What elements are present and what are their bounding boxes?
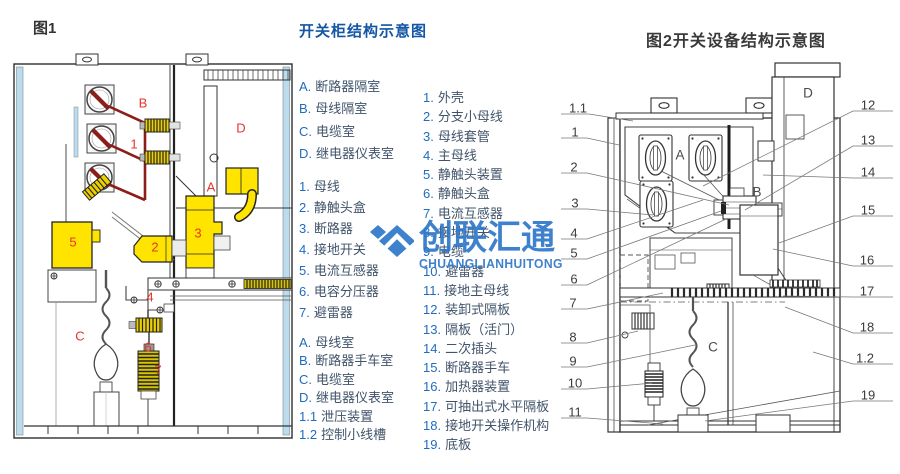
legend-item-number: C. <box>299 121 312 143</box>
legend-item: 15.断路器手车 <box>423 358 549 377</box>
legend-item-number: 9. <box>423 242 434 261</box>
callout-label-1: 1 <box>571 126 578 139</box>
callout-label-1: 1 <box>130 138 137 151</box>
legend-item-label: 母线 <box>314 176 340 197</box>
legend-item: B.断路器手车室 <box>299 352 394 370</box>
legend-item-label: 避雷器 <box>445 262 484 281</box>
callout-label-2: 2 <box>570 161 577 174</box>
legend-item-label: 分支小母线 <box>438 107 503 126</box>
legend-item-number: 1. <box>299 176 310 197</box>
legend-item-number: 3. <box>299 218 310 239</box>
legend-item: 7.避雷器 <box>299 302 379 323</box>
legend-item-number: 1.1 <box>299 408 317 426</box>
callout-label-1.1: 1.1 <box>569 102 587 115</box>
callout-label-A: A <box>207 181 216 194</box>
callout-label-C: C <box>75 330 84 343</box>
callout-label-D: D <box>803 86 813 100</box>
legend-item-label: 接地开关操作机构 <box>445 416 549 435</box>
legend-item-label: 静触头装置 <box>438 165 503 184</box>
legend-item-number: 3. <box>423 127 434 146</box>
legend-item-number: C. <box>299 371 312 389</box>
legend-item-label: 加热器装置 <box>445 377 510 396</box>
legend-item: D.继电器仪表室 <box>299 143 394 165</box>
legend-item-number: 1. <box>423 88 434 107</box>
legend-item-label: 电缆室 <box>316 371 355 389</box>
callout-label-C: C <box>708 340 718 354</box>
legend-item-number: D. <box>299 143 312 165</box>
legend-item: 4.主母线 <box>423 146 549 165</box>
legend-item: 14.二次插头 <box>423 339 549 358</box>
callout-label-7: 7 <box>569 297 576 310</box>
legend-item-number: A. <box>299 334 311 352</box>
legend-item-number: 1.2 <box>299 426 317 444</box>
legend-item-label: 避雷器 <box>314 302 353 323</box>
legend-item: 1.母线 <box>299 176 379 197</box>
legend-item: 5.静触头装置 <box>423 165 549 184</box>
callout-label-3: 3 <box>571 197 578 210</box>
legend-item-number: 2. <box>423 107 434 126</box>
legend-item-number: B. <box>299 352 311 370</box>
legend-item-number: 14. <box>423 339 441 358</box>
legend-item-number: A. <box>299 76 311 98</box>
legend-item: 9.电缆 <box>423 242 549 261</box>
callout-label-5: 5 <box>570 247 577 260</box>
legend-item-label: 隔板（活门） <box>445 320 523 339</box>
callout-label-12: 12 <box>861 99 875 112</box>
legend-item-label: 继电器仪表室 <box>316 143 394 165</box>
legend-item-number: 6. <box>423 184 434 203</box>
legend-item: 13.隔板（活门） <box>423 320 549 339</box>
legend-item-label: 泄压装置 <box>321 408 373 426</box>
legend-item-number: 13. <box>423 320 441 339</box>
figure2-drawing-svg <box>553 53 900 473</box>
callout-label-16: 16 <box>860 254 874 267</box>
legend-item-number: 7. <box>423 204 434 223</box>
callout-label-15: 15 <box>861 204 875 217</box>
figure1-tag: 图1 <box>33 17 56 38</box>
legend-item: 1.1泄压装置 <box>299 408 394 426</box>
legend-item: C.电缆室 <box>299 121 394 143</box>
legend-item-label: 主母线 <box>438 146 477 165</box>
callout-label-B: B <box>752 185 761 199</box>
callout-label-1.2: 1.2 <box>856 352 874 365</box>
legend-item: 11.接地主母线 <box>423 281 549 300</box>
callout-label-5: 5 <box>69 236 76 249</box>
legend-item-label: 静触头盒 <box>438 184 490 203</box>
legend-item-label: 接地主母线 <box>444 281 509 300</box>
callout-label-2: 2 <box>151 241 158 254</box>
callout-label-A: A <box>675 148 684 162</box>
legend-item-label: 电缆室 <box>316 121 355 143</box>
legend-item: 4.接地开关 <box>299 239 379 260</box>
legend-item-label: 断路器手车室 <box>315 352 393 370</box>
legend-item-label: 可抽出式水平隔板 <box>445 397 549 416</box>
legend-item-label: 接地开关 <box>314 239 366 260</box>
legend-item: 18.接地开关操作机构 <box>423 416 549 435</box>
legend-item: 2.分支小母线 <box>423 107 549 126</box>
legend-item-number: 6. <box>299 281 310 302</box>
legend-item: 3.断路器 <box>299 218 379 239</box>
legend-item-number: 7. <box>299 302 310 323</box>
legend-item-number: 18. <box>423 416 441 435</box>
legend-item: 8.接地开关 <box>423 223 549 242</box>
legend-item: 12.装卸式隔板 <box>423 300 549 319</box>
figure1-title: 开关柜结构示意图 <box>299 20 427 41</box>
legend-item-number: 15. <box>423 358 441 377</box>
figure2-diagram: 1.11234567891011121314151617181.219ABCD <box>553 53 900 473</box>
legend-item-label: 装卸式隔板 <box>445 300 510 319</box>
figure1-diagram: BD1A5324C67 <box>8 48 298 448</box>
legend-item: 17.可抽出式水平隔板 <box>423 397 549 416</box>
legend-item-label: 控制小线槽 <box>321 426 386 444</box>
legend-item-label: 静触头盒 <box>314 197 366 218</box>
legend-item: 6.静触头盒 <box>423 184 549 203</box>
legend-item: 7.电流互感器 <box>423 204 549 223</box>
legend-fig2-compartments: A.母线室B.断路器手车室C.电缆室D.继电器仪表室1.1泄压装置1.2控制小线… <box>299 334 394 444</box>
legend-item: 6.电容分压器 <box>299 281 379 302</box>
legend-item: B.母线隔室 <box>299 98 394 120</box>
legend-item-number: 10. <box>423 262 441 281</box>
legend-item-label: 断路器隔室 <box>315 76 380 98</box>
legend-item-number: 5. <box>423 165 434 184</box>
legend-item-number: 4. <box>299 239 310 260</box>
legend-item: A.断路器隔室 <box>299 76 394 98</box>
legend-item-number: 16. <box>423 377 441 396</box>
legend-item-label: 电流互感器 <box>314 260 379 281</box>
legend-item-label: 母线套管 <box>438 127 490 146</box>
callout-label-7: 7 <box>154 364 161 377</box>
legend-item-label: 接地开关 <box>438 223 490 242</box>
callout-label-19: 19 <box>861 389 875 402</box>
legend-fig2-parts: 1.外壳2.分支小母线3.母线套管4.主母线5.静触头装置6.静触头盒7.电流互… <box>423 88 549 455</box>
legend-item: A.母线室 <box>299 334 394 352</box>
callout-label-9: 9 <box>569 355 576 368</box>
legend-item-number: D. <box>299 389 312 407</box>
legend-item: 5.电流互感器 <box>299 260 379 281</box>
callout-label-4: 4 <box>570 227 577 240</box>
legend-item-label: 断路器 <box>314 218 353 239</box>
legend-item: C.电缆室 <box>299 371 394 389</box>
legend-item-label: 电容分压器 <box>314 281 379 302</box>
legend-item-label: 电缆 <box>438 242 464 261</box>
legend-item-label: 母线室 <box>315 334 354 352</box>
legend-item-number: 2. <box>299 197 310 218</box>
callout-label-3: 3 <box>194 227 201 240</box>
callout-label-18: 18 <box>860 321 874 334</box>
legend-item: 1.2控制小线槽 <box>299 426 394 444</box>
callout-label-14: 14 <box>861 166 875 179</box>
legend-item-number: 19. <box>423 435 441 454</box>
legend-item-number: 8. <box>423 223 434 242</box>
legend-item-number: 11. <box>423 281 440 300</box>
legend-item-label: 母线隔室 <box>315 98 367 120</box>
legend-item-label: 二次插头 <box>445 339 497 358</box>
callout-label-17: 17 <box>860 285 874 298</box>
legend-item: 2.静触头盒 <box>299 197 379 218</box>
callout-label-6: 6 <box>144 341 151 354</box>
legend-fig1-parts: 1.母线2.静触头盒3.断路器4.接地开关5.电流互感器6.电容分压器7.避雷器 <box>299 176 379 323</box>
legend-item-number: 5. <box>299 260 310 281</box>
legend-item-label: 继电器仪表室 <box>316 389 394 407</box>
legend-fig1-compartments: A.断路器隔室B.母线隔室C.电缆室D.继电器仪表室 <box>299 76 394 166</box>
callout-label-D: D <box>236 122 245 135</box>
callout-label-10: 10 <box>568 377 582 390</box>
callout-label-B: B <box>139 97 148 110</box>
callout-label-8: 8 <box>569 331 576 344</box>
callout-label-4: 4 <box>146 291 153 304</box>
page-canvas: 图1 开关柜结构示意图 图2开关设备结构示意图 <box>0 0 900 474</box>
figure2-title: 图2开关设备结构示意图 <box>646 27 826 51</box>
legend-item: 16.加热器装置 <box>423 377 549 396</box>
legend-item: 3.母线套管 <box>423 127 549 146</box>
legend-item-number: B. <box>299 98 311 120</box>
legend-item: 19.底板 <box>423 435 549 454</box>
legend-item-label: 断路器手车 <box>445 358 510 377</box>
legend-item: 1.外壳 <box>423 88 549 107</box>
legend-item-number: 17. <box>423 397 441 416</box>
callout-label-11: 11 <box>568 406 582 419</box>
legend-item-number: 4. <box>423 146 434 165</box>
legend-item-label: 电流互感器 <box>438 204 503 223</box>
callout-label-6: 6 <box>570 273 577 286</box>
legend-item: D.继电器仪表室 <box>299 389 394 407</box>
legend-item: 10.避雷器 <box>423 262 549 281</box>
legend-item-number: 12. <box>423 300 441 319</box>
legend-item-label: 外壳 <box>438 88 464 107</box>
legend-item-label: 底板 <box>445 435 471 454</box>
callout-label-13: 13 <box>861 134 875 147</box>
